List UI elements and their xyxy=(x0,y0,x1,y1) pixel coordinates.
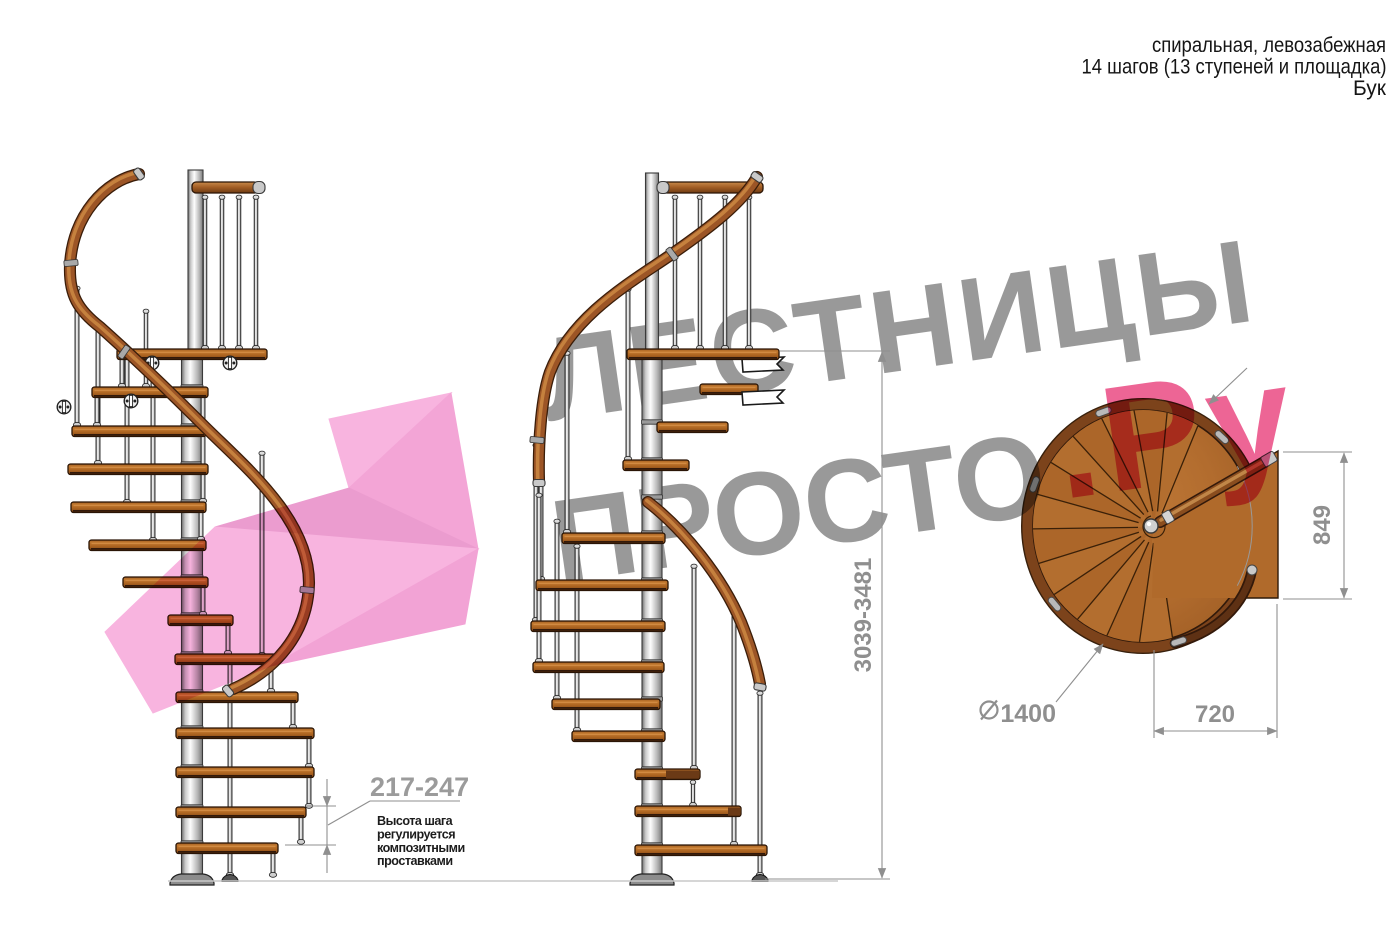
svg-text:Высота шагарегулируетсякомпози: Высота шагарегулируетсякомпозитнымипрост… xyxy=(377,814,465,868)
svg-text:3039-3481: 3039-3481 xyxy=(850,558,877,673)
svg-text:720: 720 xyxy=(1195,701,1235,728)
svg-text:849: 849 xyxy=(1309,505,1336,545)
svg-text:спиральная, левозабежная: спиральная, левозабежная xyxy=(1152,34,1386,57)
svg-text:14 шагов (13 ступеней и площад: 14 шагов (13 ступеней и площадка) xyxy=(1082,56,1387,79)
svg-text:1400: 1400 xyxy=(1000,700,1056,728)
svg-text:Бук: Бук xyxy=(1353,77,1387,100)
svg-text:217-247: 217-247 xyxy=(370,772,469,802)
